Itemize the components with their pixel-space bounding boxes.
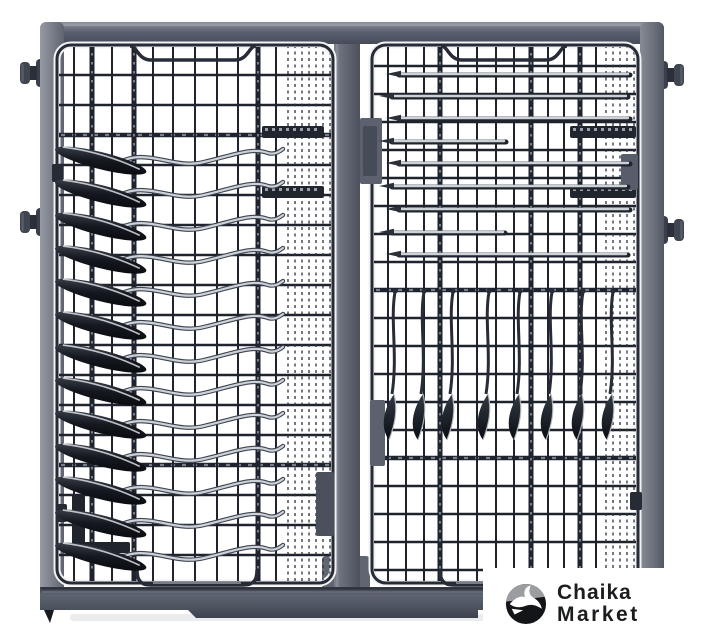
flat-knife <box>53 438 283 477</box>
knife-handle <box>610 292 613 394</box>
comb-holder <box>262 126 324 138</box>
skewer <box>386 71 630 77</box>
knife-handle <box>549 292 552 394</box>
brand-name: Chaika Market <box>557 582 640 626</box>
brand-watermark: Chaika Market <box>483 568 702 640</box>
cutlery-basket-left <box>57 45 333 583</box>
mount-block <box>630 492 642 510</box>
rail-foot <box>44 610 54 623</box>
rack-right-rail <box>640 22 664 622</box>
flat-knife <box>53 207 283 246</box>
hanging-knife <box>384 288 398 440</box>
comb-bar <box>570 126 636 138</box>
flat-knife <box>53 471 283 510</box>
skewer <box>386 160 630 166</box>
brand-line1: Chaika <box>557 582 640 604</box>
comb-bar <box>262 126 324 138</box>
top-rail-highlight <box>48 24 656 27</box>
flat-knife <box>53 174 283 213</box>
mount-block <box>52 164 63 182</box>
flat-knife <box>53 273 283 312</box>
hanging-knife <box>478 288 492 440</box>
flat-knife <box>53 504 283 543</box>
flat-knife <box>53 405 283 444</box>
knife-handle <box>450 292 453 394</box>
flat-knife <box>53 240 283 279</box>
mount-block <box>370 400 385 466</box>
seagull-icon <box>505 583 547 625</box>
knife-handle <box>421 292 424 394</box>
hanging-knife <box>509 288 523 440</box>
comb-holder <box>570 126 636 138</box>
mount-block <box>316 472 334 536</box>
skewer <box>386 251 628 257</box>
mount-block <box>363 126 377 176</box>
knife-handle <box>517 292 520 394</box>
knife-handle <box>486 292 489 394</box>
wire-mesh <box>372 45 638 583</box>
skewer <box>386 115 630 121</box>
basket-wire-outline <box>372 45 638 583</box>
basket-halo <box>372 45 638 583</box>
flat-knife <box>53 141 283 180</box>
knife-handle <box>392 292 395 394</box>
wire-mesh <box>57 45 333 583</box>
bottom-handle <box>440 570 486 585</box>
hanging-knife <box>442 288 456 440</box>
product-photo: Chaika Market <box>0 0 702 640</box>
skewer <box>379 183 628 189</box>
cutlery-basket-right <box>372 45 638 583</box>
hanging-knife <box>602 288 616 440</box>
flat-knife <box>53 306 283 345</box>
skewer-tip <box>379 183 394 189</box>
dishwasher-tray-scene <box>0 0 702 640</box>
brand-line2: Market <box>557 604 640 626</box>
